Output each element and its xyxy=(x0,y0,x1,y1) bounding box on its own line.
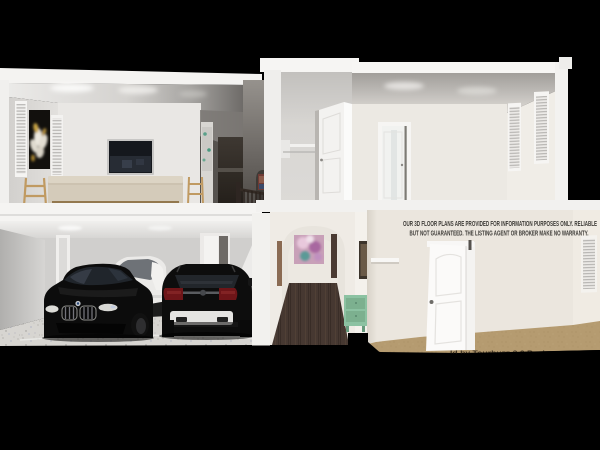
svg-text:OUR 3D FLOOR PLANS ARE PROVIDE: OUR 3D FLOOR PLANS ARE PROVIDED FOR INFO… xyxy=(403,221,597,228)
svg-text:BUT NOT GUARANTEED. THE LISTIN: BUT NOT GUARANTEED. THE LISTING AGENT OR… xyxy=(410,231,589,238)
